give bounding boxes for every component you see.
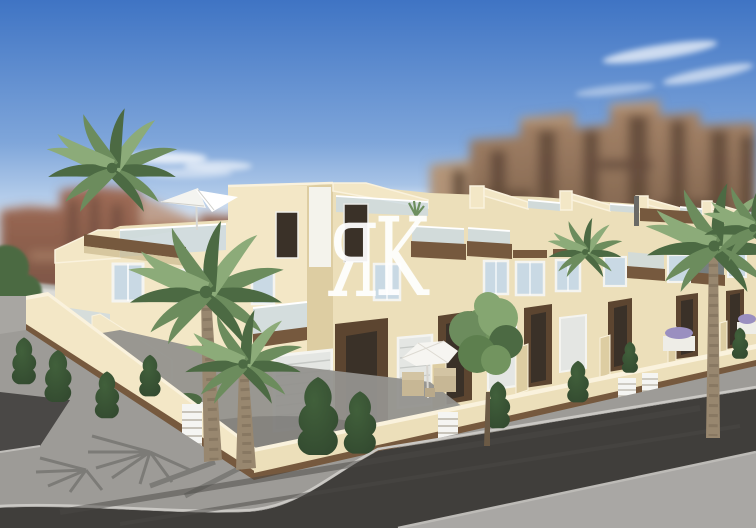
balcony-2	[467, 228, 512, 259]
stair-glass-panel	[309, 187, 331, 267]
scene-canvas	[0, 0, 756, 528]
chimney	[634, 196, 639, 226]
window-u3	[516, 262, 544, 295]
render-image: ЯK	[0, 0, 756, 528]
window-u1	[374, 264, 400, 300]
street-behind-wall	[0, 296, 26, 336]
balcony-5	[627, 252, 665, 281]
window-u5	[604, 257, 626, 286]
stair-dark-window	[344, 204, 368, 262]
window-u2	[484, 261, 508, 294]
tower-dark-window	[276, 212, 298, 258]
shutter-window-3	[560, 315, 586, 372]
balcony-1	[411, 226, 466, 260]
